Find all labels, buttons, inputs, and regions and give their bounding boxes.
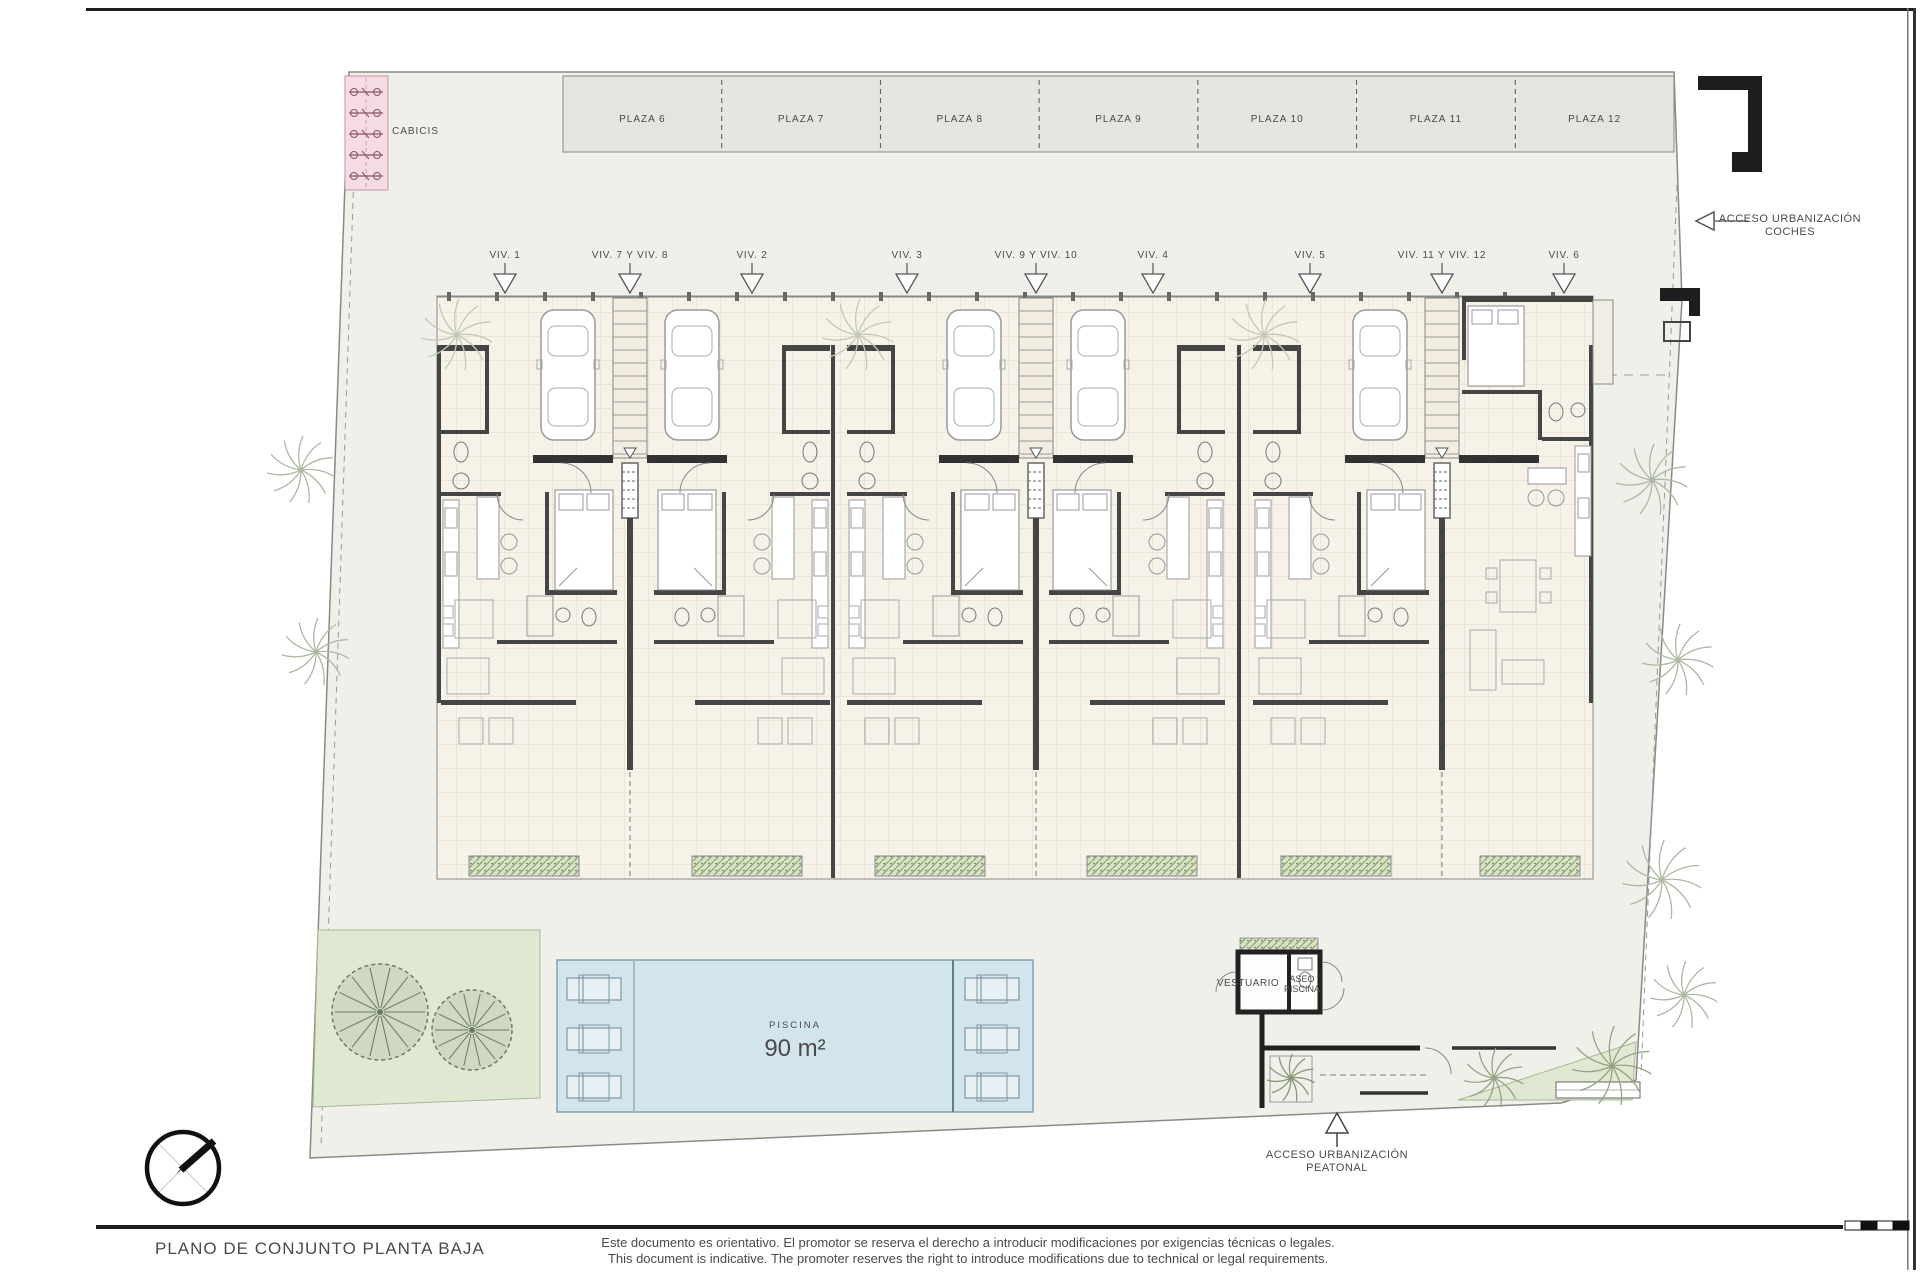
palm-trunk (455, 333, 460, 338)
wall (497, 640, 617, 644)
wall (782, 430, 830, 434)
sheet-title: PLANO DE CONJUNTO PLANTA BAJA (155, 1239, 485, 1258)
sun-lounger-icon (965, 1073, 1019, 1101)
car-icon (1067, 310, 1129, 440)
pergola-post (1215, 292, 1219, 301)
parking-stall-label: PLAZA 6 (619, 114, 665, 125)
wall (654, 640, 774, 644)
pergola-post (591, 292, 595, 301)
car-icon (943, 310, 1005, 440)
scale-segment (1893, 1221, 1909, 1230)
wall (545, 492, 549, 594)
wall (847, 430, 895, 434)
end-wall (437, 345, 441, 703)
palm-trunk (856, 333, 861, 338)
pedestrian-access-label-2: PEATONAL (1306, 1162, 1368, 1174)
garden-tree-icon (432, 990, 512, 1070)
wall (1253, 700, 1388, 705)
stair-core (1019, 298, 1053, 458)
wall (951, 492, 955, 594)
scale-segment (1861, 1221, 1877, 1230)
palm-trunk (1610, 1064, 1615, 1069)
car-icon (537, 310, 599, 440)
pergola-post (1071, 292, 1075, 301)
wall (1309, 640, 1429, 644)
wall (1049, 640, 1169, 644)
sun-lounger-icon (567, 1025, 621, 1053)
palm-trunk (299, 468, 304, 473)
wall (782, 345, 786, 433)
wall (441, 430, 489, 434)
wall (1177, 345, 1181, 433)
bike-storage-label: CABICIS (392, 126, 439, 137)
stair-core (613, 298, 647, 458)
wall (1053, 490, 1111, 590)
scale-segment (1877, 1221, 1893, 1230)
wall (1357, 590, 1429, 595)
pergola-post (543, 292, 547, 301)
sheet-right-border-outer (1913, 8, 1916, 1270)
wall (782, 345, 830, 351)
wall (1087, 856, 1197, 876)
pergola-post (1119, 292, 1123, 301)
wall (654, 590, 726, 595)
wall (951, 590, 1023, 595)
pergola-post (879, 292, 883, 301)
palm-trunk (314, 650, 319, 655)
pool-label: PISCINA (769, 1020, 821, 1031)
party-wall (1237, 345, 1241, 878)
wall (1538, 390, 1542, 440)
unit-marker-label: VIV. 6 (1548, 250, 1579, 261)
lounger-frame (567, 978, 621, 1000)
unit-marker-label: VIV. 7 Y VIV. 8 (592, 250, 669, 261)
sun-lounger-icon (567, 975, 621, 1003)
wall (469, 856, 579, 876)
wall (1167, 497, 1189, 579)
wall (545, 590, 617, 595)
wall (903, 640, 1023, 644)
entry-wall (1459, 455, 1539, 463)
wall (847, 492, 907, 496)
wall (441, 492, 501, 496)
wall (1177, 345, 1225, 351)
palm-trunk (1682, 993, 1687, 998)
sun-lounger-icon (965, 975, 1019, 1003)
wall (1090, 700, 1225, 705)
wall (1281, 856, 1391, 876)
wall (770, 492, 830, 496)
wall (883, 497, 905, 579)
wall (722, 492, 726, 594)
site-plan-sheet: PLAZA 6PLAZA 7PLAZA 8PLAZA 9PLAZA 10PLAZ… (0, 0, 1920, 1280)
sun-lounger-icon (567, 1073, 621, 1101)
unit-marker-label: VIV. 11 Y VIV. 12 (1398, 250, 1486, 261)
tree-trunk (469, 1027, 475, 1033)
kitchen-island (1528, 468, 1566, 484)
pergola-post (1359, 292, 1363, 301)
unit-marker-label: VIV. 1 (489, 250, 520, 261)
pedestrian-access-label-1: ACCESO URBANIZACIÓN (1266, 1148, 1408, 1161)
palm-trunk (1262, 333, 1267, 338)
wall (1357, 492, 1361, 594)
car-icon (1349, 310, 1411, 440)
palm-trunk (1676, 658, 1681, 663)
wall (485, 345, 489, 433)
wall (772, 497, 794, 579)
entry-wall (939, 455, 1019, 463)
lounger-frame (965, 978, 1019, 1000)
wall (477, 497, 499, 579)
pergola-post (495, 292, 499, 301)
pergola-post (831, 292, 835, 301)
lounger-frame (567, 1076, 621, 1098)
planter (1480, 856, 1580, 876)
wall (1367, 490, 1425, 590)
car-icon (661, 310, 723, 440)
palm-trunk (1492, 1076, 1497, 1081)
sheet-right-border-inner (1907, 8, 1909, 1270)
wall (875, 856, 985, 876)
wall (1165, 492, 1225, 496)
pool-area: PISCINA 90 m² (557, 960, 1033, 1112)
scale-segment (1845, 1221, 1861, 1230)
unit-marker-label: VIV. 5 (1294, 250, 1325, 261)
pool-wc-label-1: ASEO (1289, 974, 1314, 984)
lounger-frame (965, 1028, 1019, 1050)
disclaimer-es: Este documento es orientativo. El promot… (601, 1235, 1334, 1250)
scale-bar-icon (1845, 1221, 1909, 1230)
wall (847, 700, 982, 705)
parking-stall-label: PLAZA 9 (1095, 114, 1141, 125)
wall (441, 700, 576, 705)
wall (1462, 296, 1593, 302)
entry-wall (1053, 455, 1133, 463)
tree-trunk (377, 1009, 383, 1015)
pergola-post (1167, 292, 1171, 301)
wall (692, 856, 802, 876)
sheet-top-border (86, 8, 1916, 11)
wall (1117, 492, 1121, 594)
wall (555, 490, 613, 590)
disclaimer-en: This document is indicative. The promote… (608, 1251, 1328, 1266)
pool-area-value: 90 m² (764, 1035, 825, 1062)
wall (1177, 430, 1225, 434)
palm-trunk (1660, 878, 1665, 883)
parking-stall-label: PLAZA 11 (1410, 114, 1462, 125)
stair-core (1425, 298, 1459, 458)
wall (1049, 590, 1121, 595)
wall (1289, 497, 1311, 579)
car-access-label-2: COCHES (1765, 226, 1815, 238)
entry-wall (1345, 455, 1425, 463)
wall (1542, 437, 1593, 441)
sun-lounger-icon (965, 1025, 1019, 1053)
site-plan-drawing: PLAZA 6PLAZA 7PLAZA 8PLAZA 9PLAZA 10PLAZ… (0, 0, 1920, 1280)
palm-trunk (1289, 1076, 1294, 1081)
pergola-post (927, 292, 931, 301)
lounger-frame (965, 1076, 1019, 1098)
parking-stall-label: PLAZA 8 (937, 114, 983, 125)
unit-marker-label: VIV. 9 Y VIV. 10 (995, 250, 1078, 261)
balcony-nub (1593, 300, 1613, 384)
changing-room-label: VESTUARIO (1217, 978, 1279, 989)
wall (1253, 430, 1301, 434)
parking-stall-label: PLAZA 12 (1568, 114, 1621, 125)
wall (961, 490, 1019, 590)
wall (1253, 345, 1301, 351)
wall (847, 345, 895, 351)
car-access-label-1: ACCESO URBANIZACIÓN (1719, 212, 1861, 225)
pool-wc-label-2: PISCINA (1284, 984, 1320, 994)
entry-wall (533, 455, 613, 463)
party-wall (831, 345, 835, 878)
wall (891, 345, 895, 433)
unit-marker-label: VIV. 3 (891, 250, 922, 261)
wall (1462, 296, 1466, 360)
wall (658, 490, 716, 590)
bed-icon (1468, 306, 1524, 386)
unit-marker-label: VIV. 2 (736, 250, 767, 261)
pergola-post (1407, 292, 1411, 301)
pergola-post (687, 292, 691, 301)
wall (1253, 492, 1313, 496)
palm-trunk (1650, 478, 1655, 483)
pergola-post (735, 292, 739, 301)
unit-marker-label: VIV. 4 (1137, 250, 1168, 261)
garden-tree-icon (332, 964, 428, 1060)
lounger-frame (567, 1028, 621, 1050)
parking-stall-label: PLAZA 7 (778, 114, 824, 125)
wall (1462, 390, 1542, 394)
entry-wall (647, 455, 727, 463)
pergola-post (1311, 292, 1315, 301)
title-block-rule (96, 1225, 1843, 1229)
parking-stall-label: PLAZA 10 (1251, 114, 1304, 125)
pergola-post (783, 292, 787, 301)
pergola-post (447, 292, 451, 301)
wall (1297, 345, 1301, 433)
wall (695, 700, 830, 705)
pergola-post (975, 292, 979, 301)
